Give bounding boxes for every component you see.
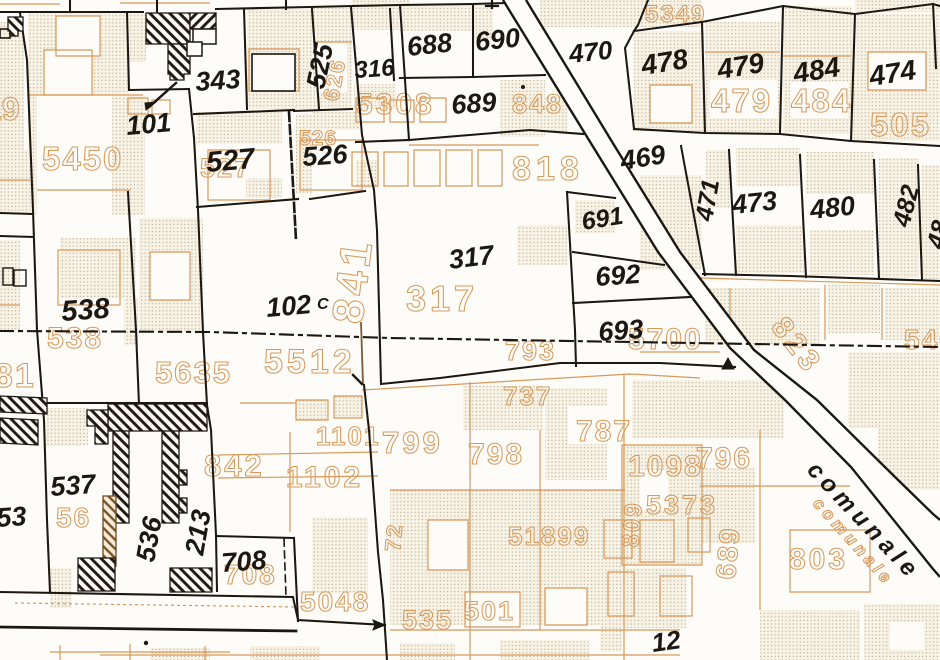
svg-text:1098: 1098 [628,450,703,483]
svg-text:505: 505 [870,106,931,143]
svg-text:12: 12 [650,624,683,658]
svg-text:56: 56 [56,502,91,533]
svg-text:470: 470 [566,35,614,70]
svg-text:51899: 51899 [508,521,590,551]
svg-text:5635: 5635 [155,355,232,390]
svg-text:C: C [317,296,329,313]
svg-text:19: 19 [0,91,20,127]
svg-text:796: 796 [696,442,752,475]
svg-text:689: 689 [710,525,745,580]
svg-text:1102: 1102 [286,461,363,494]
svg-text:688: 688 [405,27,453,62]
svg-text:848: 848 [512,89,563,119]
svg-text:809: 809 [617,500,648,548]
svg-text:737: 737 [503,381,552,411]
svg-text:5349: 5349 [645,1,706,28]
svg-text:5512: 5512 [264,343,356,381]
svg-text:799: 799 [382,425,443,460]
svg-text:538: 538 [60,293,111,328]
svg-text:317: 317 [447,239,497,275]
svg-text:72: 72 [380,522,407,553]
svg-text:798: 798 [468,438,524,471]
svg-text:581: 581 [0,357,36,395]
svg-text:5450: 5450 [42,140,123,177]
svg-text:53: 53 [0,501,27,533]
svg-text:803: 803 [789,543,848,576]
svg-text:787: 787 [576,415,632,448]
svg-text:818: 818 [512,150,584,188]
svg-text:692: 692 [594,259,641,292]
svg-text:526: 526 [301,139,349,172]
svg-text:480: 480 [807,190,856,225]
svg-text:841: 841 [323,235,382,326]
svg-text:479: 479 [711,82,772,119]
svg-text:546: 546 [904,324,940,355]
svg-text:5048: 5048 [300,586,370,617]
svg-text:537: 537 [49,469,98,502]
svg-text:343: 343 [194,64,241,97]
svg-text:708: 708 [220,545,267,578]
svg-text:5308: 5308 [356,88,435,121]
svg-text:527: 527 [205,143,258,179]
svg-text:535: 535 [402,605,453,635]
svg-text:101: 101 [125,107,173,141]
svg-text:102: 102 [265,289,313,323]
svg-text:690: 690 [473,22,521,57]
svg-text:316: 316 [354,54,396,84]
svg-text:473: 473 [729,185,778,220]
svg-text:5373: 5373 [646,490,718,520]
svg-text:689: 689 [450,87,497,120]
svg-text:501: 501 [464,596,515,626]
svg-text:317: 317 [406,278,478,319]
svg-text:693: 693 [597,314,644,347]
